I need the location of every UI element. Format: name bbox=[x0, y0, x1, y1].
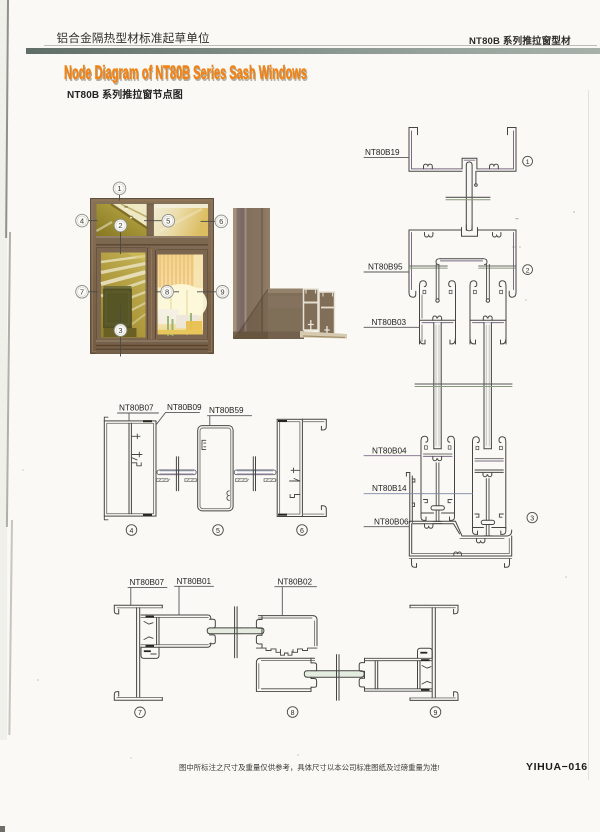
svg-text:1: 1 bbox=[526, 159, 530, 166]
svg-text:6: 6 bbox=[300, 528, 304, 535]
svg-text:9: 9 bbox=[220, 288, 224, 297]
svg-text:NT80B19: NT80B19 bbox=[365, 148, 400, 157]
svg-text:NT80B03: NT80B03 bbox=[372, 318, 407, 327]
svg-text:NT80B09: NT80B09 bbox=[167, 403, 202, 412]
svg-text:6: 6 bbox=[219, 217, 223, 226]
svg-text:NT80B59: NT80B59 bbox=[209, 406, 244, 415]
svg-text:NT80B02: NT80B02 bbox=[278, 577, 313, 586]
svg-text:NT80B14: NT80B14 bbox=[372, 484, 407, 493]
svg-text:4: 4 bbox=[130, 528, 134, 535]
svg-text:3: 3 bbox=[118, 326, 122, 335]
svg-text:NT80B95: NT80B95 bbox=[368, 263, 403, 272]
svg-text:NT80B07: NT80B07 bbox=[130, 578, 165, 587]
svg-text:8: 8 bbox=[165, 288, 169, 297]
svg-text:NT80B04: NT80B04 bbox=[372, 446, 407, 455]
svg-text:2: 2 bbox=[118, 221, 122, 230]
svg-text:3: 3 bbox=[530, 516, 534, 523]
svg-text:2: 2 bbox=[526, 267, 530, 274]
svg-text:NT80B01: NT80B01 bbox=[177, 577, 212, 586]
svg-text:7: 7 bbox=[138, 710, 142, 717]
svg-text:5: 5 bbox=[216, 528, 220, 535]
svg-text:1: 1 bbox=[117, 184, 121, 193]
svg-text:7: 7 bbox=[80, 288, 84, 297]
svg-text:5: 5 bbox=[166, 216, 170, 225]
svg-text:8: 8 bbox=[291, 710, 295, 717]
svg-text:4: 4 bbox=[80, 216, 84, 225]
svg-text:NT80B06: NT80B06 bbox=[374, 517, 409, 526]
svg-text:9: 9 bbox=[434, 710, 438, 717]
svg-text:NT80B07: NT80B07 bbox=[119, 404, 154, 413]
